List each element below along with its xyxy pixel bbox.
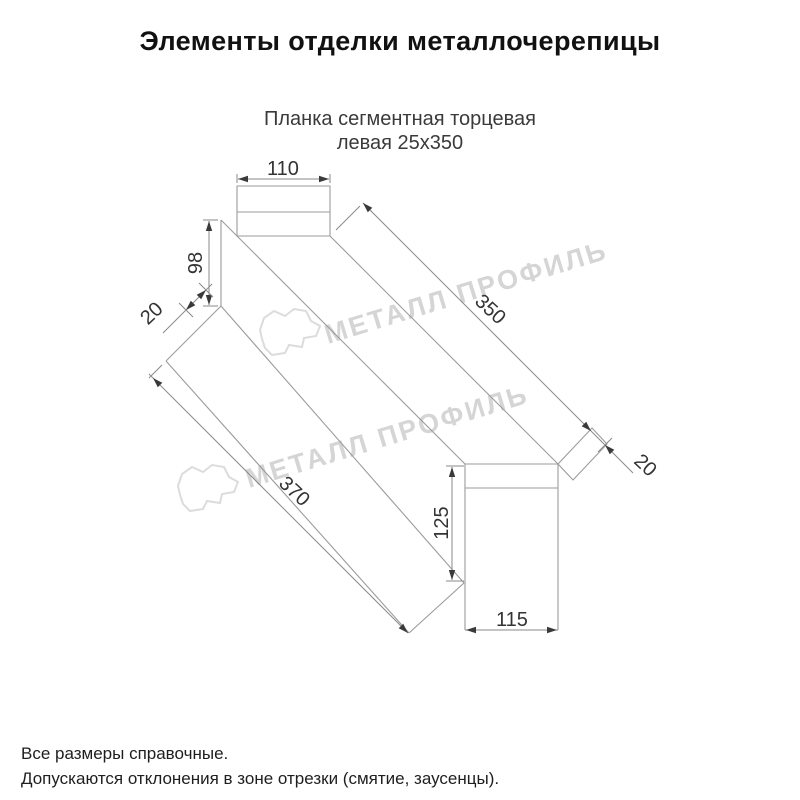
drawing-subtitle: Планка сегментная торцевая левая 25х350 — [0, 107, 800, 155]
footer-line1: Все размеры справочные. — [21, 741, 499, 766]
watermark-text: МЕТАЛЛ ПРОФИЛЬ — [321, 235, 611, 350]
cloud-logo-icon — [178, 465, 238, 511]
subtitle-line2: левая 25х350 — [0, 131, 800, 155]
end-hem-fold — [558, 428, 607, 480]
edge-top-left — [221, 220, 465, 464]
watermark-upper: МЕТАЛЛ ПРОФИЛЬ — [260, 235, 611, 355]
page-title: Элементы отделки металлочерепицы — [0, 26, 800, 57]
dim-370: 370 — [149, 365, 408, 633]
dim-110-label: 110 — [267, 158, 299, 180]
arrow-icon — [206, 221, 212, 231]
dim-98-label: 98 — [185, 252, 207, 274]
arrow-icon — [449, 467, 455, 477]
dim-110: 110 — [237, 158, 330, 183]
bottom-view-outline — [465, 464, 558, 630]
arrow-icon — [547, 627, 557, 633]
far-end-cut-edge — [409, 583, 464, 633]
footer-line2: Допускаются отклонения в зоне отрезки (с… — [21, 766, 499, 791]
footer-notes: Все размеры справочные. Допускаются откл… — [21, 741, 499, 791]
dim-125-label: 125 — [431, 506, 453, 539]
cloud-logo-icon — [260, 309, 320, 355]
profile-top-view — [237, 186, 330, 236]
top-view-outline — [237, 186, 330, 236]
profile-bottom-view — [465, 464, 558, 630]
arrow-icon — [449, 570, 455, 580]
dim-20-hem-label: 20 — [629, 450, 660, 481]
near-end-flange-edge — [166, 306, 221, 361]
dim-115: 115 — [465, 609, 558, 633]
arrow-icon — [466, 627, 476, 633]
watermark-lower: МЕТАЛЛ ПРОФИЛЬ — [178, 379, 532, 511]
subtitle-line1: Планка сегментная торцевая — [0, 107, 800, 131]
arrow-icon — [206, 295, 212, 305]
edge-flange-inner — [221, 306, 464, 583]
dim-115-label: 115 — [496, 609, 528, 631]
dim-20-flange-label: 20 — [136, 298, 167, 329]
arrow-icon — [319, 176, 329, 182]
arrow-icon — [238, 176, 248, 182]
